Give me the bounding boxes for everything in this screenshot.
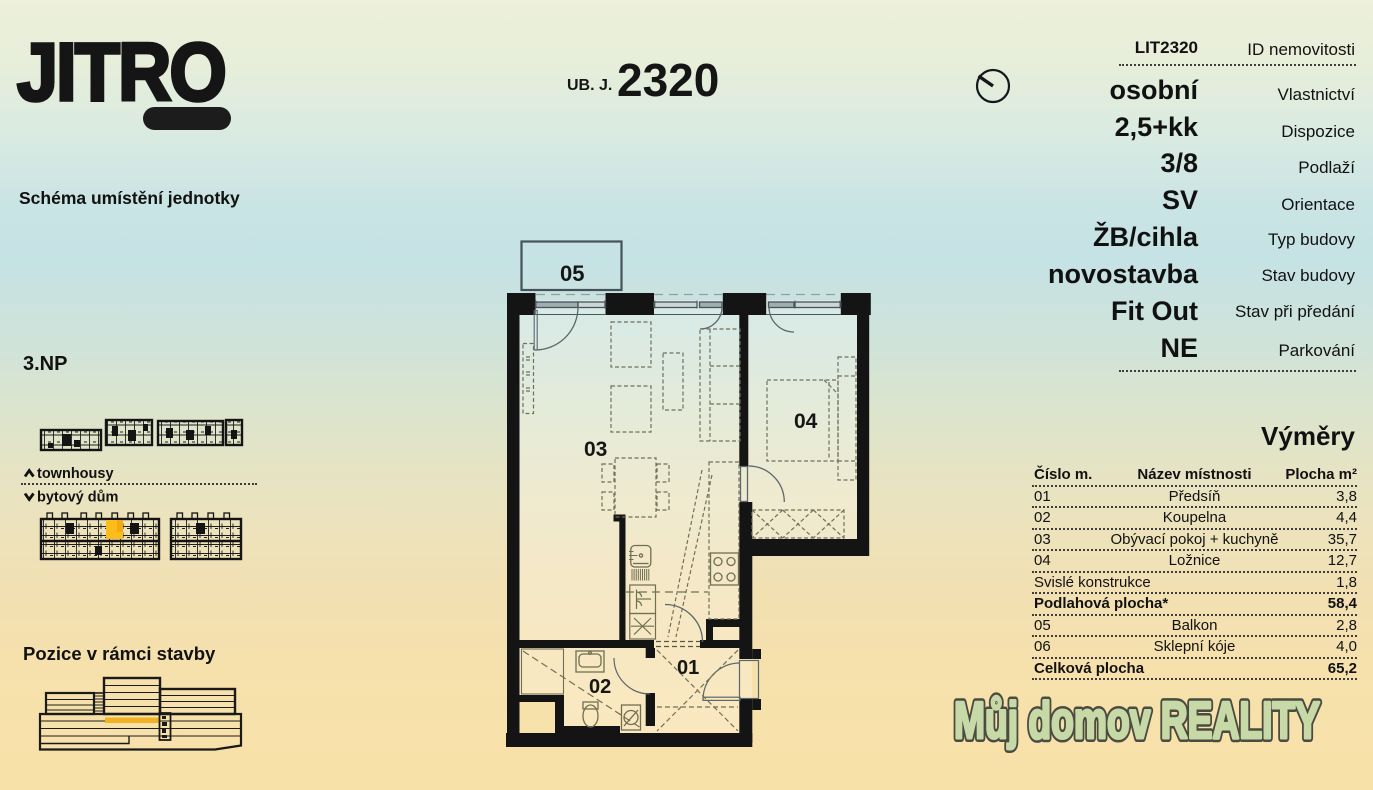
svg-text:Můj domov REALITY: Můj domov REALITY — [954, 692, 1320, 750]
svg-text:04: 04 — [794, 410, 818, 433]
svg-text:02: 02 — [589, 676, 611, 698]
svg-text:03: 03 — [584, 438, 607, 461]
svg-text:05: 05 — [560, 261, 584, 286]
svg-text:01: 01 — [677, 657, 699, 679]
